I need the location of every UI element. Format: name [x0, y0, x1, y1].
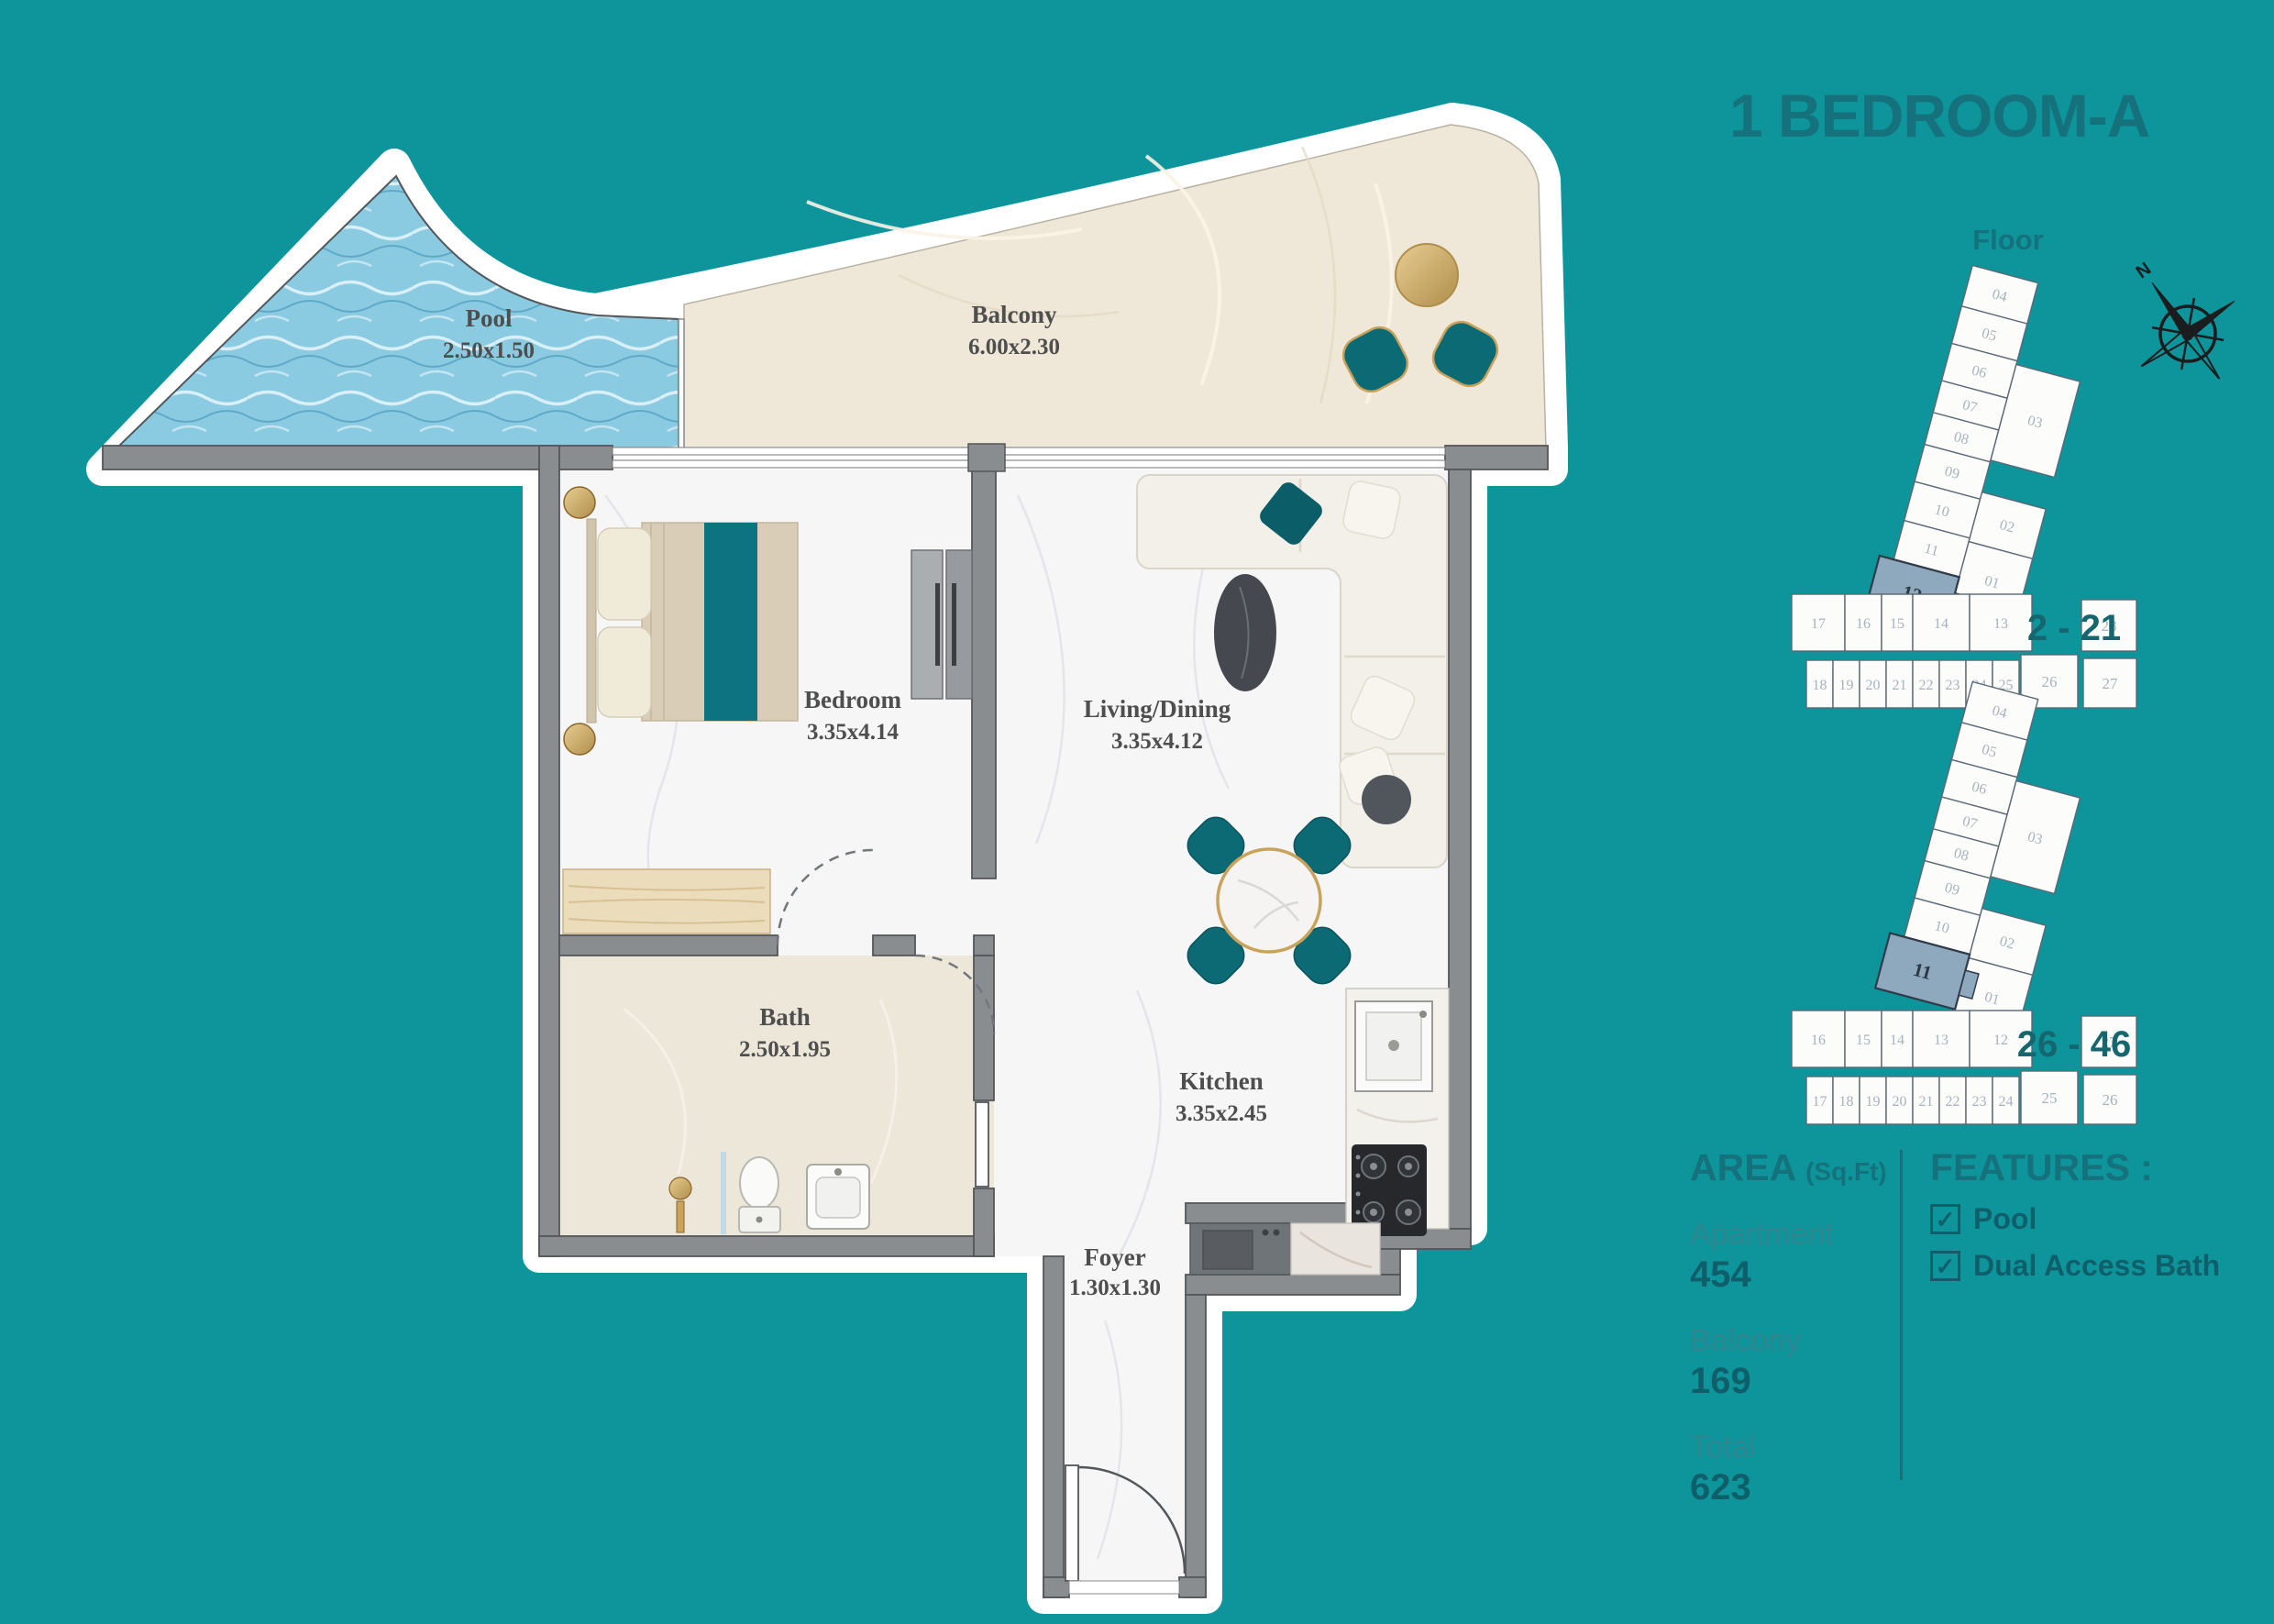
entrance-door-leaf — [1065, 1465, 1078, 1581]
unit-number: 22 — [1946, 1094, 1960, 1110]
unit-number: 23 — [1972, 1094, 1987, 1110]
brochure-page: Pool 2.50x1.50 Balcony 6.00x2.30 Bedroom… — [0, 0, 2274, 1624]
unit-number: 18 — [1839, 1094, 1854, 1110]
pillow — [598, 627, 651, 717]
building-diagram-floors-2-21: 0405060708091011030201121716151413181920… — [1790, 264, 2157, 723]
nightstand — [564, 487, 595, 518]
unit-number: 25 — [2042, 1089, 2058, 1107]
feature-item-dual-access-bath: ✓ Dual Access Bath — [1930, 1249, 2242, 1283]
room-dims-bedroom: 3.35x4.14 — [807, 720, 900, 745]
room-label-pool: Pool — [466, 304, 513, 332]
unit-number: 15 — [1856, 1033, 1871, 1048]
unit-number: 19 — [1866, 1094, 1881, 1110]
room-label-kitchen: Kitchen — [1179, 1067, 1264, 1095]
area-row-total: Total 623 — [1690, 1430, 1896, 1508]
unit-number: 24 — [1999, 1094, 2014, 1110]
area-section: AREA (Sq.Ft) Apartment 454 Balcony 169 T… — [1690, 1146, 1896, 1508]
floors-range-label: 2 - 21 — [2027, 608, 2121, 648]
coffee-table — [1214, 574, 1276, 691]
balcony-table — [1396, 244, 1458, 306]
floors-range-label: 26 - 46 — [2017, 1024, 2132, 1065]
unit-number: 17 — [1811, 616, 1826, 632]
checkbox-checked-icon: ✓ — [1930, 1204, 1960, 1234]
divider — [1900, 1150, 1903, 1480]
feature-item-pool: ✓ Pool — [1930, 1202, 2242, 1236]
unit-number: 14 — [1890, 1033, 1904, 1048]
unit-number: 16 — [1856, 616, 1871, 632]
room-dims-bath: 2.50x1.95 — [739, 1037, 831, 1062]
dining-table — [1218, 849, 1320, 952]
toilet — [740, 1157, 778, 1209]
page-title: 1 BEDROOM-A — [1729, 81, 2243, 150]
unit-number: 13 — [1993, 616, 2008, 632]
pool-balcony-divider — [679, 319, 684, 449]
unit-number: 17 — [1813, 1094, 1827, 1110]
features-section: FEATURES : ✓ Pool ✓ Dual Access Bath — [1930, 1146, 2242, 1283]
area-heading: AREA (Sq.Ft) — [1690, 1146, 1896, 1189]
room-dims-living: 3.35x4.12 — [1111, 729, 1203, 754]
building-diagram-floors-26-46: 0405060708091003020111161514131217181920… — [1790, 680, 2157, 1139]
room-label-balcony: Balcony — [971, 301, 1057, 328]
room-label-bath: Bath — [759, 1003, 811, 1031]
entrance-threshold — [1069, 1581, 1179, 1594]
unit-number: 14 — [1934, 616, 1948, 632]
dresser — [563, 869, 770, 934]
pillow — [598, 528, 651, 620]
unit-number: 12 — [1993, 1033, 2008, 1048]
room-label-living: Living/Dining — [1084, 695, 1231, 723]
shower-glass — [721, 1152, 726, 1234]
features-heading: FEATURES : — [1930, 1146, 2242, 1189]
pouf — [1362, 775, 1411, 824]
nightstand — [564, 724, 595, 755]
tower-wing: 0405060708091003020111 — [1872, 680, 2102, 1037]
room-dims-kitchen: 3.35x2.45 — [1176, 1101, 1267, 1126]
area-row-apartment: Apartment 454 — [1690, 1217, 1896, 1296]
tower-wing: 040506070809101103020112 — [1865, 264, 2102, 649]
unit-number: 13 — [1934, 1033, 1948, 1048]
unit-number: 16 — [1811, 1033, 1826, 1048]
bath-second-door-leaf — [976, 1102, 988, 1187]
shower-fixture — [669, 1177, 691, 1199]
floor-plan: Pool 2.50x1.50 Balcony 6.00x2.30 Bedroom… — [0, 0, 1650, 1624]
checkbox-checked-icon: ✓ — [1930, 1251, 1960, 1281]
unit-number: 20 — [1893, 1094, 1907, 1110]
room-dims-balcony: 6.00x2.30 — [968, 335, 1060, 359]
room-label-bedroom: Bedroom — [804, 686, 902, 713]
wardrobe — [911, 550, 972, 699]
room-dims-foyer: 1.30x1.30 — [1069, 1276, 1161, 1300]
room-dims-pool: 2.50x1.50 — [443, 338, 535, 363]
unit-number: 21 — [1919, 1094, 1934, 1110]
unit-number: 15 — [1890, 616, 1904, 632]
area-row-balcony: Balcony 169 — [1690, 1323, 1896, 1402]
unit-number: 26 — [2103, 1091, 2118, 1109]
cushion — [1341, 480, 1402, 540]
floor-heading: Floor — [1935, 224, 2081, 257]
room-label-foyer: Foyer — [1084, 1243, 1145, 1271]
